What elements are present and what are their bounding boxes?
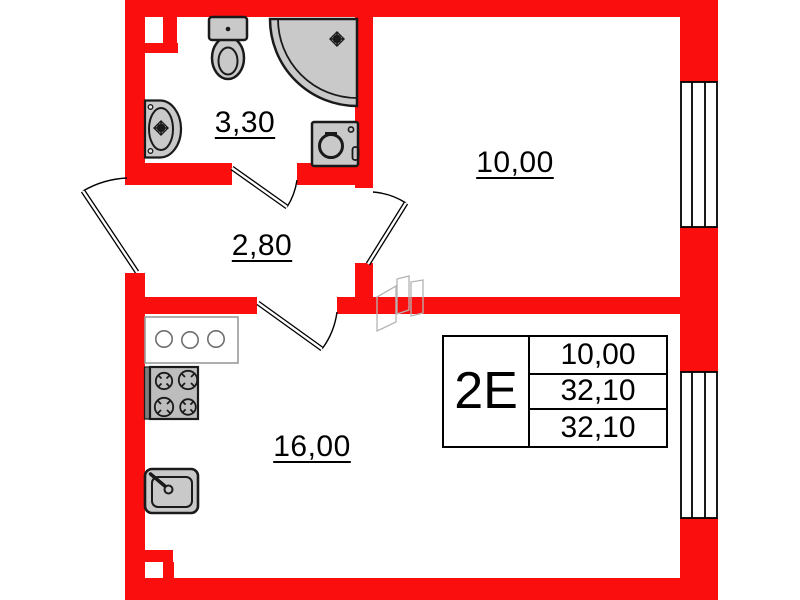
window-1 xyxy=(681,82,717,227)
wall-bathroom-bottom-left xyxy=(125,163,232,185)
room-area-label: 10,00 xyxy=(455,146,575,180)
window-2 xyxy=(681,372,717,518)
kitchen-sink-icon xyxy=(145,469,198,513)
door-room xyxy=(368,192,406,264)
unit-overall-area-cell: 32,10 xyxy=(530,410,666,446)
wall-middle-right xyxy=(337,297,680,314)
unit-info-table: 2Е 10,00 32,10 32,10 xyxy=(442,335,668,448)
window-icon xyxy=(681,372,717,518)
door-swing-icon xyxy=(83,178,127,191)
hallway-area-label: 2,80 xyxy=(202,229,322,263)
kitchen-counter-icon xyxy=(145,317,238,363)
door-swing-icon xyxy=(322,312,337,349)
wall-right-bottom xyxy=(680,518,718,600)
floor-plan-drawing xyxy=(0,0,800,600)
toilet-icon xyxy=(209,17,247,79)
wall-bottom xyxy=(125,578,718,600)
door-bathroom xyxy=(232,168,297,207)
notch-bottomleft-tab-top xyxy=(145,550,173,562)
bathroom-sink-icon xyxy=(145,101,181,158)
wall-hall-room-stub xyxy=(355,263,373,298)
stove-icon xyxy=(145,367,199,419)
wall-left-lower xyxy=(125,273,145,600)
door-swing-icon xyxy=(373,192,406,203)
window-icon xyxy=(681,82,717,227)
wall-right-middle xyxy=(680,227,718,372)
notch-bottomleft-tab-right xyxy=(163,562,174,580)
shower-icon xyxy=(270,19,357,106)
wall-middle-left xyxy=(125,297,257,314)
door-entrance xyxy=(83,178,137,272)
wall-right-top xyxy=(680,0,718,82)
unit-type-cell: 2Е xyxy=(444,337,530,446)
bathroom-area-label: 3,30 xyxy=(185,106,305,140)
floor-plan: 3,30 2,80 10,00 16,00 2Е 10,00 32,10 32,… xyxy=(0,0,800,600)
washing-machine-icon xyxy=(312,122,359,166)
unit-total-area-cell: 32,10 xyxy=(530,373,666,409)
kitchen-area-label: 16,00 xyxy=(252,430,372,464)
notch-topleft-tab-bottom xyxy=(145,43,178,53)
door-swing-icon xyxy=(287,180,297,207)
walls xyxy=(125,0,718,600)
wall-top xyxy=(125,0,718,17)
door-kitchen xyxy=(258,303,337,349)
unit-room-area-cell: 10,00 xyxy=(530,337,666,373)
wall-left-upper xyxy=(125,0,145,180)
